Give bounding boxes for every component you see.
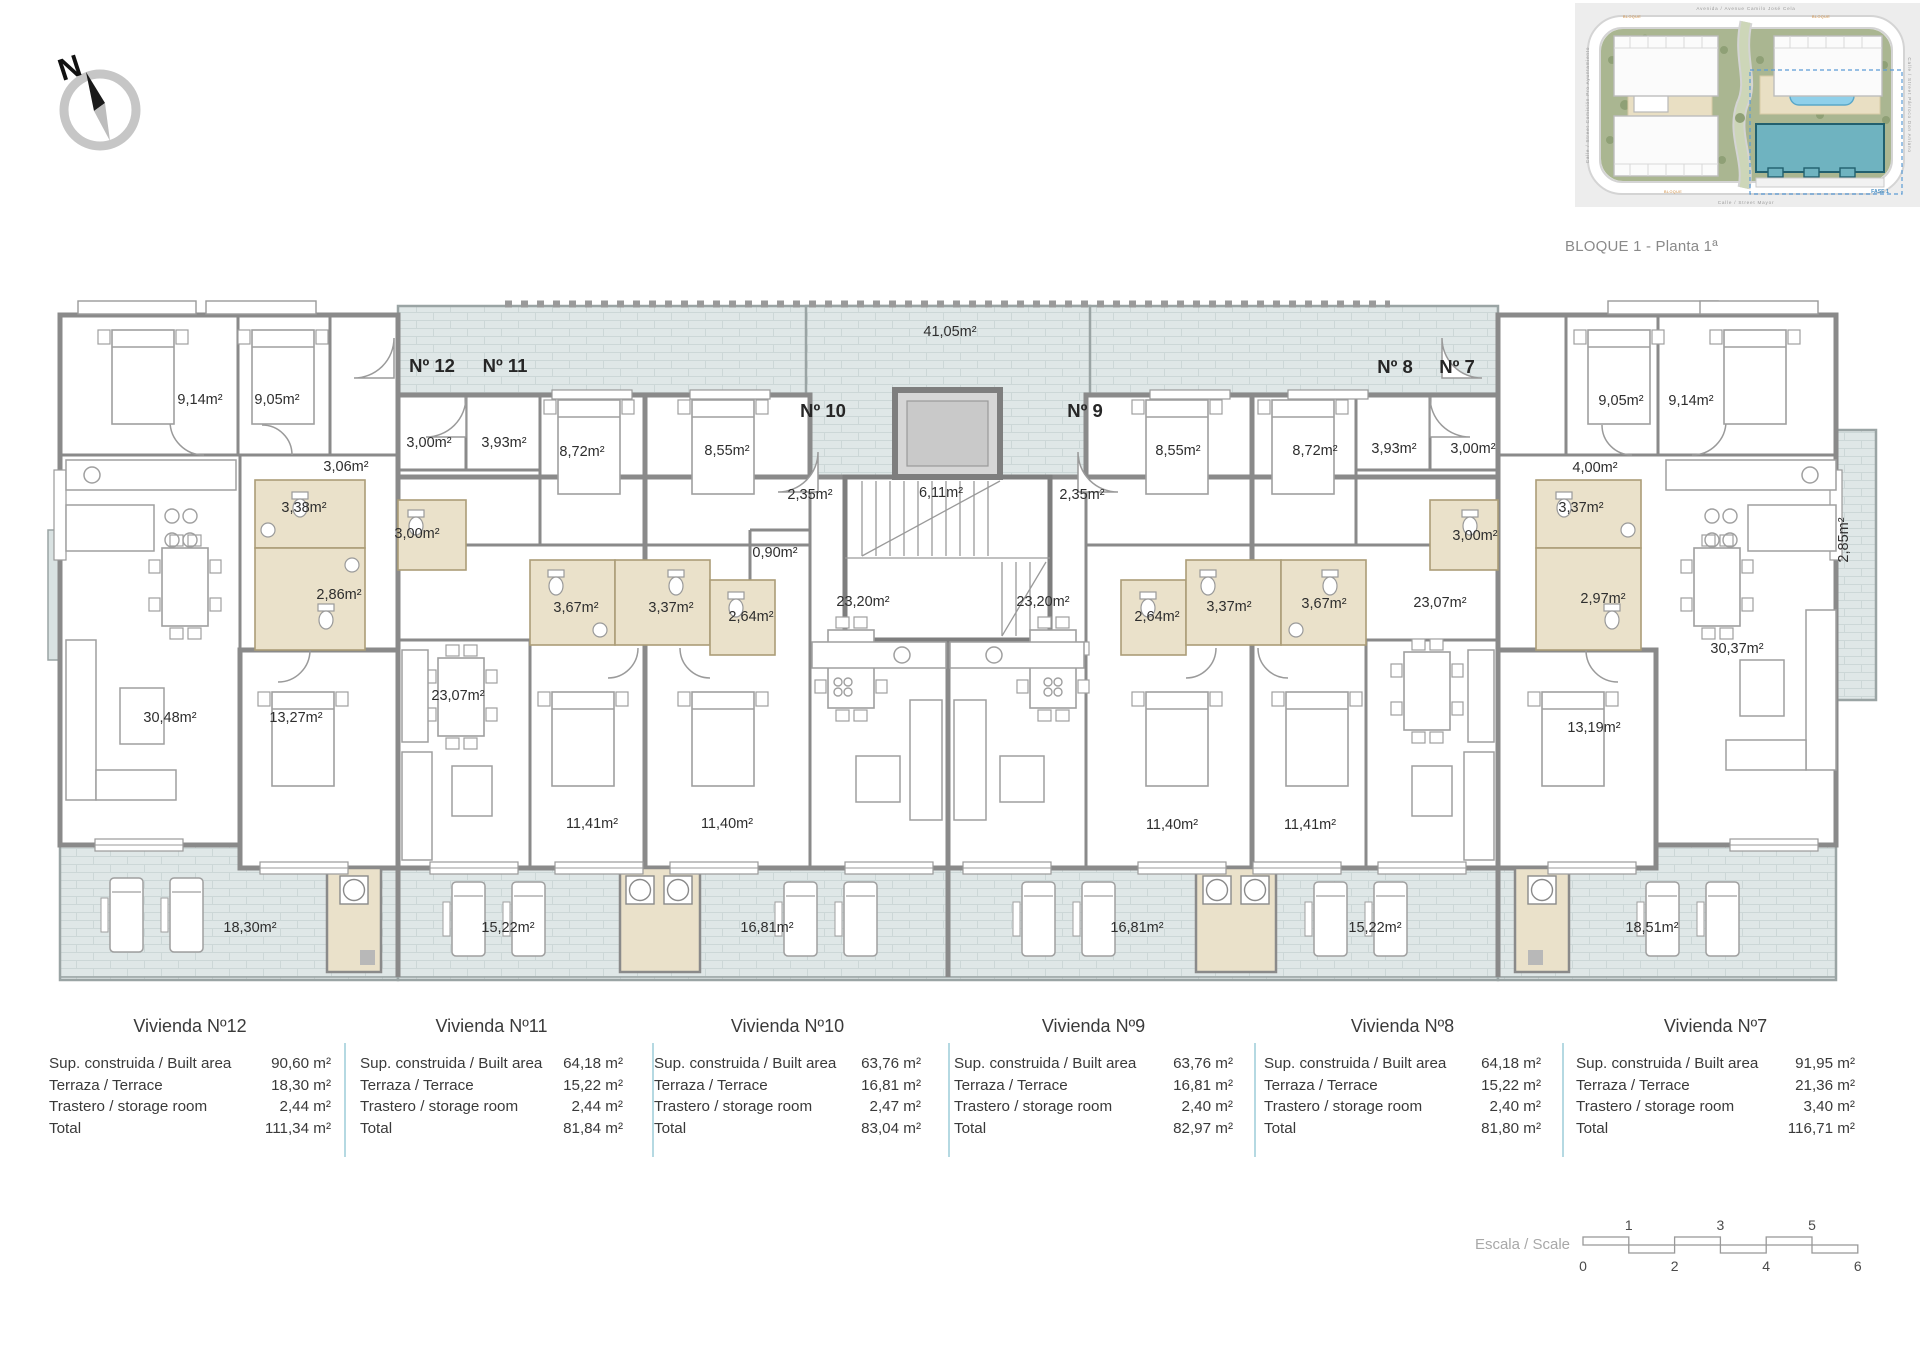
row-value: 111,34 m² [255,1118,331,1140]
row-value: 91,95 m² [1785,1053,1855,1075]
floor-plan-sheet: N [0,0,1920,1358]
row-value: 2,47 m² [860,1096,922,1118]
room-area-label: 2,64m² [1134,609,1179,625]
unit-table-row: Terraza / Terrace16,81 m² [954,1075,1233,1097]
room-area-label: 23,20m² [1016,594,1069,610]
unit-table-row: Total116,71 m² [1576,1118,1855,1140]
room-area-label: 23,07m² [431,688,484,704]
scale-label: Escala / Scale [1475,1236,1570,1253]
room-area-label: 2,97m² [1580,591,1625,607]
site-plan-minimap: Avenida / Avenue Camilo José Cela Calle … [1575,3,1920,207]
room-area-label: 23,07m² [1413,595,1466,611]
row-label: Terraza / Terrace [654,1075,768,1097]
room-area-label: 8,55m² [704,443,749,459]
unit-table-row: Terraza / Terrace15,22 m² [1264,1075,1541,1097]
row-value: 64,18 m² [1471,1053,1541,1075]
room-area-label: 16,81m² [1110,920,1163,936]
phase-label: FASE 1 [1871,189,1889,195]
row-label: Sup. construida / Built area [1264,1053,1446,1075]
row-label: Trastero / storage room [360,1096,518,1118]
unit-table-row: Trastero / storage room2,40 m² [954,1096,1233,1118]
room-area-label: 8,55m² [1155,443,1200,459]
unit-table-row: Total82,97 m² [954,1118,1233,1140]
row-value: 2,44 m² [270,1096,332,1118]
room-area-label: 18,30m² [223,920,276,936]
row-value: 90,60 m² [261,1053,331,1075]
scale-number: 2 [1671,1258,1679,1274]
room-area-label: 11,40m² [701,816,753,832]
unit-table-title: Vivienda Nº9 [954,1016,1233,1037]
scale-segment [1720,1245,1766,1253]
row-value: 81,84 m² [553,1118,623,1140]
room-area-label: 0,90m² [752,545,797,561]
unit-table-row: Terraza / Terrace16,81 m² [654,1075,921,1097]
row-value: 83,04 m² [851,1118,921,1140]
room-area-label: 11,40m² [1146,817,1198,833]
room-area-label: 30,37m² [1710,641,1763,657]
row-label: Trastero / storage room [654,1096,812,1118]
room-area-label-vertical: 2,85m² [1836,517,1852,562]
sheet-caption: BLOQUE 1 - Planta 1ª [1565,238,1718,255]
room-area-label: 3,00m² [406,435,451,451]
room-area-label: 15,22m² [481,920,534,936]
unit-table-row: Sup. construida / Built area91,95 m² [1576,1053,1855,1075]
center-path [1739,22,1747,188]
room-area-label: 9,05m² [254,392,299,408]
room-area-label: 3,00m² [1452,528,1497,544]
row-label: Terraza / Terrace [1576,1075,1690,1097]
unit-table-10: Vivienda Nº10Sup. construida / Built are… [654,1016,921,1139]
row-value: 2,40 m² [1480,1096,1542,1118]
row-label: Total [954,1118,986,1140]
scale-segment [1629,1245,1675,1253]
unit-table-row: Sup. construida / Built area63,76 m² [654,1053,921,1075]
room-area-label: 11,41m² [1284,817,1336,833]
row-label: Trastero / storage room [1264,1096,1422,1118]
unit-table-row: Terraza / Terrace15,22 m² [360,1075,623,1097]
scale-number: 4 [1762,1258,1770,1274]
room-area-label: 9,05m² [1598,393,1643,409]
scale-number: 3 [1717,1217,1725,1233]
row-label: Trastero / storage room [1576,1096,1734,1118]
room-area-label: 13,27m² [269,710,322,726]
block-label-2: BLOQUE [1812,15,1830,19]
unit-table-row: Trastero / storage room2,47 m² [654,1096,921,1118]
room-area-label: 3,37m² [1206,599,1251,615]
scale-number: 1 [1625,1217,1633,1233]
unit-table-row: Terraza / Terrace21,36 m² [1576,1075,1855,1097]
floor-plan: 41,05m²9,14m²9,05m²3,00m²3,93m²3,06m²8,7… [48,301,1876,980]
row-value: 18,30 m² [261,1075,331,1097]
row-value: 116,71 m² [1778,1118,1855,1140]
apartment-number-label: Nº 10 [800,400,846,421]
room-area-label: 9,14m² [177,392,222,408]
room-area-label: 2,35m² [1059,487,1104,503]
room-area-label: 16,81m² [740,920,793,936]
scale-segment [1675,1237,1721,1245]
row-value: 64,18 m² [553,1053,623,1075]
row-value: 21,36 m² [1785,1075,1855,1097]
unit-table-row: Total111,34 m² [49,1118,331,1140]
table-divider [344,1043,346,1157]
room-area-label: 23,20m² [836,594,889,610]
street-label-left: Calle / Street Comisión Pro Ayuntamiento [1585,47,1590,163]
unit-table-title: Vivienda Nº8 [1264,1016,1541,1037]
table-divider [1254,1043,1256,1157]
unit-table-row: Trastero / storage room2,40 m² [1264,1096,1541,1118]
unit-table-row: Total83,04 m² [654,1118,921,1140]
unit-table-row: Trastero / storage room3,40 m² [1576,1096,1855,1118]
elevator-car [907,401,988,466]
storage-door-n12 [360,950,375,965]
room-area-label: 9,14m² [1668,393,1713,409]
row-value: 15,22 m² [1471,1075,1541,1097]
unit-table-row: Trastero / storage room2,44 m² [49,1096,331,1118]
north-compass: N [54,48,136,146]
room-area-label: 4,00m² [1572,460,1617,476]
row-label: Terraza / Terrace [1264,1075,1378,1097]
row-label: Total [1576,1118,1608,1140]
scale-segment [1812,1245,1858,1253]
room-area-label: 8,72m² [559,444,604,460]
room-area-label: 8,72m² [1292,443,1337,459]
room-area-label: 15,22m² [1348,920,1401,936]
scale-number: 5 [1808,1217,1816,1233]
scale-segment [1583,1237,1629,1245]
row-label: Trastero / storage room [49,1096,207,1118]
row-value: 82,97 m² [1163,1118,1233,1140]
room-area-label: 13,19m² [1567,720,1620,736]
row-label: Total [49,1118,81,1140]
apartment-number-label: Nº 8 [1377,356,1413,377]
row-label: Total [1264,1118,1296,1140]
room-area-label: 3,67m² [553,600,598,616]
unit-table-row: Sup. construida / Built area63,76 m² [954,1053,1233,1075]
scale-number: 0 [1579,1258,1587,1274]
room-area-label: 2,64m² [728,609,773,625]
row-label: Terraza / Terrace [954,1075,1068,1097]
row-label: Sup. construida / Built area [49,1053,231,1075]
street-label-right: Calle / Street Párroco Don Aniano [1907,57,1912,152]
row-value: 2,40 m² [1172,1096,1234,1118]
room-area-label: 3,37m² [1558,500,1603,516]
row-value: 81,80 m² [1471,1118,1541,1140]
scale-bar: Escala / Scale 1350246 [1475,1217,1862,1274]
unit-table-row: Sup. construida / Built area90,60 m² [49,1053,331,1075]
room-area-label: 3,06m² [323,459,368,475]
apartment-number-label: Nº 12 [409,355,455,376]
unit-table-row: Terraza / Terrace18,30 m² [49,1075,331,1097]
unit-table-9: Vivienda Nº9Sup. construida / Built area… [954,1016,1233,1139]
unit-table-row: Total81,80 m² [1264,1118,1541,1140]
scale-number: 6 [1854,1258,1862,1274]
north-label: N [54,48,86,88]
row-value: 63,76 m² [1163,1053,1233,1075]
table-divider [1562,1043,1564,1157]
row-label: Sup. construida / Built area [1576,1053,1758,1075]
room-area-label: 2,35m² [787,487,832,503]
room-area-label: 3,93m² [1371,441,1416,457]
row-label: Total [654,1118,686,1140]
unit-table-11: Vivienda Nº11Sup. construida / Built are… [360,1016,623,1139]
room-area-label: 2,86m² [316,587,361,603]
row-value: 16,81 m² [851,1075,921,1097]
scale-segment [1766,1237,1812,1245]
unit-table-7: Vivienda Nº7Sup. construida / Built area… [1576,1016,1855,1139]
room-area-label: 6,11m² [919,485,963,501]
unit-table-title: Vivienda Nº11 [360,1016,623,1037]
apartment-number-label: Nº 11 [483,355,528,376]
room-area-label: 3,93m² [481,435,526,451]
unit-table-12: Vivienda Nº12Sup. construida / Built are… [49,1016,331,1139]
row-label: Terraza / Terrace [49,1075,163,1097]
unit-table-title: Vivienda Nº12 [49,1016,331,1037]
highlighted-block-1 [1756,124,1884,187]
unit-table-row: Trastero / storage room2,44 m² [360,1096,623,1118]
table-divider [652,1043,654,1157]
row-value: 16,81 m² [1163,1075,1233,1097]
unit-table-title: Vivienda Nº10 [654,1016,921,1037]
drawing-canvas: N [0,0,1920,1358]
row-value: 3,40 m² [1794,1096,1856,1118]
row-value: 2,44 m² [562,1096,624,1118]
scale-segments [1583,1237,1858,1253]
room-area-label: 3,00m² [394,526,439,542]
room-area-label: 41,05m² [923,324,976,340]
room-area-label: 30,48m² [143,710,196,726]
row-label: Sup. construida / Built area [954,1053,1136,1075]
row-value: 63,76 m² [851,1053,921,1075]
street-label-top: Avenida / Avenue Camilo José Cela [1696,6,1795,11]
row-value: 15,22 m² [553,1075,623,1097]
unit-table-row: Sup. construida / Built area64,18 m² [360,1053,623,1075]
room-area-label: 3,38m² [281,500,326,516]
room-area-label: 18,51m² [1625,920,1678,936]
row-label: Total [360,1118,392,1140]
row-label: Sup. construida / Built area [360,1053,542,1075]
table-divider [948,1043,950,1157]
unit-table-title: Vivienda Nº7 [1576,1016,1855,1037]
block-label-3: BLOQUE [1664,190,1682,194]
unit-table-row: Sup. construida / Built area64,18 m² [1264,1053,1541,1075]
unit-table-8: Vivienda Nº8Sup. construida / Built area… [1264,1016,1541,1139]
storage-door-n7 [1528,950,1543,965]
room-area-label: 3,67m² [1301,596,1346,612]
unit-table-row: Total81,84 m² [360,1118,623,1140]
street-label-bottom: Calle / Street Mayor [1718,200,1775,205]
room-area-label: 3,00m² [1450,441,1495,457]
row-label: Trastero / storage room [954,1096,1112,1118]
row-label: Sup. construida / Built area [654,1053,836,1075]
block-label-1: BLOQUE [1623,15,1641,19]
room-area-label: 3,37m² [648,600,693,616]
row-label: Terraza / Terrace [360,1075,474,1097]
apartment-number-label: Nº 9 [1067,400,1103,421]
apartment-number-label: Nº 7 [1439,356,1475,377]
room-area-label: 11,41m² [566,816,618,832]
